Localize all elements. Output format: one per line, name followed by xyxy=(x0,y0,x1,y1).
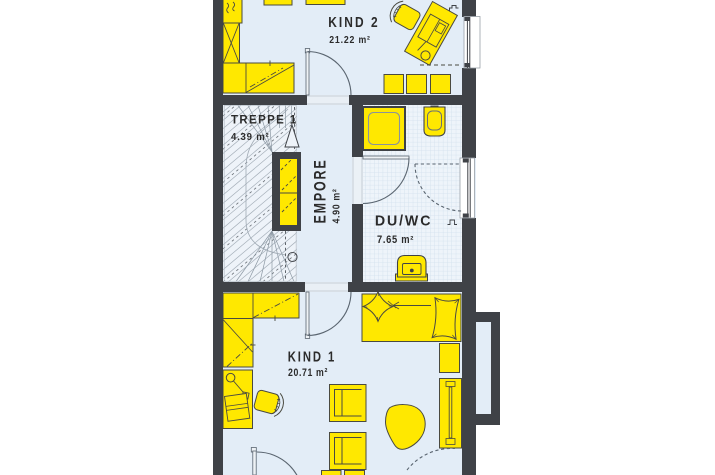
svg-text:EMPORE: EMPORE xyxy=(311,159,330,224)
svg-text:21.22 m²: 21.22 m² xyxy=(329,34,371,46)
svg-text:4.90 m²: 4.90 m² xyxy=(331,189,343,224)
svg-text:20.71 m²: 20.71 m² xyxy=(288,367,328,379)
svg-text:TREPPE 1: TREPPE 1 xyxy=(231,113,298,127)
svg-text:KIND 2: KIND 2 xyxy=(328,15,380,31)
svg-text:7.65 m²: 7.65 m² xyxy=(377,234,414,246)
svg-text:KIND 1: KIND 1 xyxy=(288,350,337,366)
svg-text:DU/WC: DU/WC xyxy=(375,213,433,230)
svg-text:4.39 m²: 4.39 m² xyxy=(231,132,270,143)
